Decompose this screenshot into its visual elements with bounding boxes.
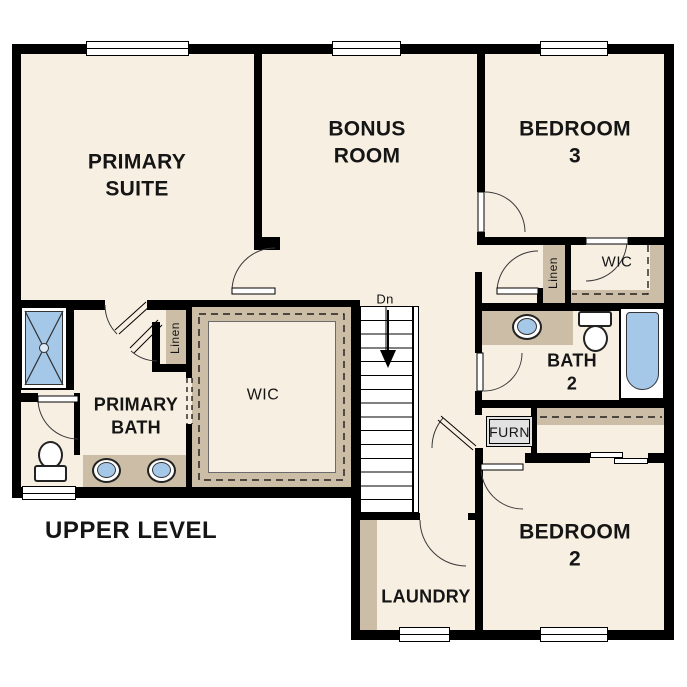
laundry-chase bbox=[360, 520, 377, 630]
label-bedroom3-linen: Linen bbox=[546, 257, 562, 289]
furnace-unit: FURN bbox=[486, 416, 533, 447]
floor-plan: FURN bbox=[0, 0, 687, 687]
staircase bbox=[360, 306, 413, 513]
bypass-door-panel bbox=[614, 458, 648, 464]
label-primary-linen: Linen bbox=[168, 322, 184, 354]
wall bbox=[628, 237, 664, 245]
wall bbox=[648, 453, 664, 463]
wall bbox=[186, 424, 192, 493]
label-laundry: LAUNDRY bbox=[381, 585, 470, 608]
wall bbox=[525, 453, 590, 463]
bedroom2-closet-shelf bbox=[537, 408, 664, 425]
label-bedroom3-wic: WIC bbox=[602, 252, 633, 272]
wall bbox=[254, 44, 262, 237]
label-furnace: FURN bbox=[489, 424, 530, 440]
sink-basin bbox=[152, 462, 171, 478]
wall bbox=[475, 400, 664, 408]
wall bbox=[664, 44, 674, 640]
window bbox=[86, 41, 189, 56]
wall bbox=[477, 44, 485, 192]
bathtub-basin bbox=[626, 312, 659, 390]
label-primary-bath: PRIMARY BATH bbox=[94, 394, 178, 441]
window bbox=[332, 41, 401, 56]
toilet-tank bbox=[34, 465, 67, 482]
sink-basin bbox=[97, 462, 116, 478]
sink-basin bbox=[517, 318, 537, 335]
window bbox=[540, 41, 608, 56]
wall bbox=[74, 393, 80, 455]
window bbox=[399, 627, 450, 642]
label-primary-wic: WIC bbox=[247, 386, 280, 407]
wall bbox=[475, 311, 482, 353]
page-title: UPPER LEVEL bbox=[45, 517, 217, 545]
wall bbox=[12, 44, 21, 498]
window bbox=[540, 627, 608, 642]
shower-pan bbox=[25, 311, 63, 385]
label-bedroom-3: BEDROOM 3 bbox=[519, 116, 631, 171]
stair-railing bbox=[413, 306, 419, 513]
wall bbox=[475, 448, 483, 630]
wall bbox=[20, 393, 38, 402]
label-primary-suite: PRIMARY SUITE bbox=[88, 149, 186, 204]
wall bbox=[351, 300, 360, 640]
wall bbox=[468, 513, 482, 520]
label-bedroom-2: BEDROOM 2 bbox=[519, 519, 631, 574]
wall bbox=[186, 300, 358, 307]
window bbox=[22, 486, 76, 500]
wall bbox=[565, 237, 571, 310]
wall bbox=[254, 237, 280, 250]
label-stairs-down: Dn bbox=[376, 292, 393, 309]
wall bbox=[186, 300, 192, 378]
label-bath-2: BATH 2 bbox=[547, 350, 597, 397]
wall bbox=[351, 513, 420, 520]
toilet-fixture bbox=[583, 325, 608, 352]
wall bbox=[68, 306, 74, 390]
bedroom3-wic-shelf-right bbox=[650, 245, 664, 303]
wall bbox=[147, 300, 186, 310]
label-bonus-room: BONUS ROOM bbox=[328, 116, 405, 171]
